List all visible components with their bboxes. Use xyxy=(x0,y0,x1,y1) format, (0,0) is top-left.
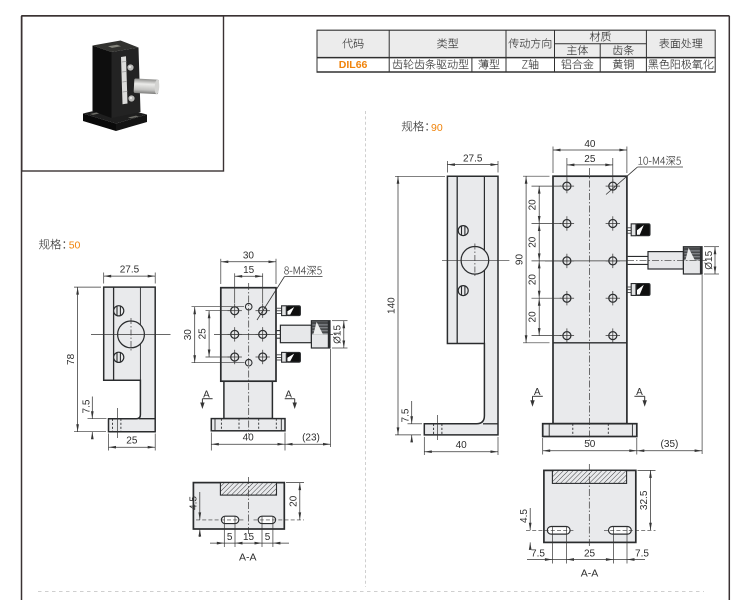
svg-text:15: 15 xyxy=(243,532,255,543)
svg-text:7.5: 7.5 xyxy=(635,549,649,560)
svg-text:(35): (35) xyxy=(661,439,679,450)
svg-text:4.5: 4.5 xyxy=(519,509,530,523)
svg-text:90: 90 xyxy=(515,254,526,266)
svg-text:78: 78 xyxy=(66,353,77,365)
svg-text:40: 40 xyxy=(243,433,255,444)
svg-text:5: 5 xyxy=(227,532,233,543)
svg-text:Ø15: Ø15 xyxy=(333,325,344,344)
svg-text:20: 20 xyxy=(528,274,539,286)
svg-text:(23): (23) xyxy=(302,433,320,444)
svg-text:Ø15: Ø15 xyxy=(704,250,715,269)
svg-text:25: 25 xyxy=(584,154,596,165)
svg-text:DIL66: DIL66 xyxy=(339,59,368,71)
svg-text:20: 20 xyxy=(528,311,539,323)
svg-text:4.5: 4.5 xyxy=(188,496,199,510)
svg-text:40: 40 xyxy=(456,440,468,451)
svg-text:20: 20 xyxy=(528,236,539,248)
svg-text:5: 5 xyxy=(265,532,271,543)
svg-text:30: 30 xyxy=(243,250,255,261)
svg-text:50: 50 xyxy=(584,439,596,450)
svg-text:27.5: 27.5 xyxy=(463,153,483,164)
svg-text:A-A: A-A xyxy=(581,568,599,580)
svg-text:40: 40 xyxy=(584,139,596,150)
svg-text:7.5: 7.5 xyxy=(531,549,545,560)
svg-text:30: 30 xyxy=(183,329,194,341)
svg-text:25: 25 xyxy=(198,328,209,340)
svg-text:25: 25 xyxy=(126,436,138,447)
svg-text:7.5: 7.5 xyxy=(81,399,92,413)
svg-text:25: 25 xyxy=(584,549,596,560)
svg-text:140: 140 xyxy=(387,297,398,314)
svg-text:20: 20 xyxy=(528,199,539,211)
svg-text:27.5: 27.5 xyxy=(120,265,140,276)
svg-text:20: 20 xyxy=(288,495,299,507)
svg-text:7.5: 7.5 xyxy=(401,408,412,422)
svg-text:90: 90 xyxy=(431,122,443,134)
svg-text:A-A: A-A xyxy=(239,552,257,564)
svg-text:32.5: 32.5 xyxy=(639,490,650,510)
svg-text:50: 50 xyxy=(69,240,81,252)
svg-text:15: 15 xyxy=(243,265,255,276)
